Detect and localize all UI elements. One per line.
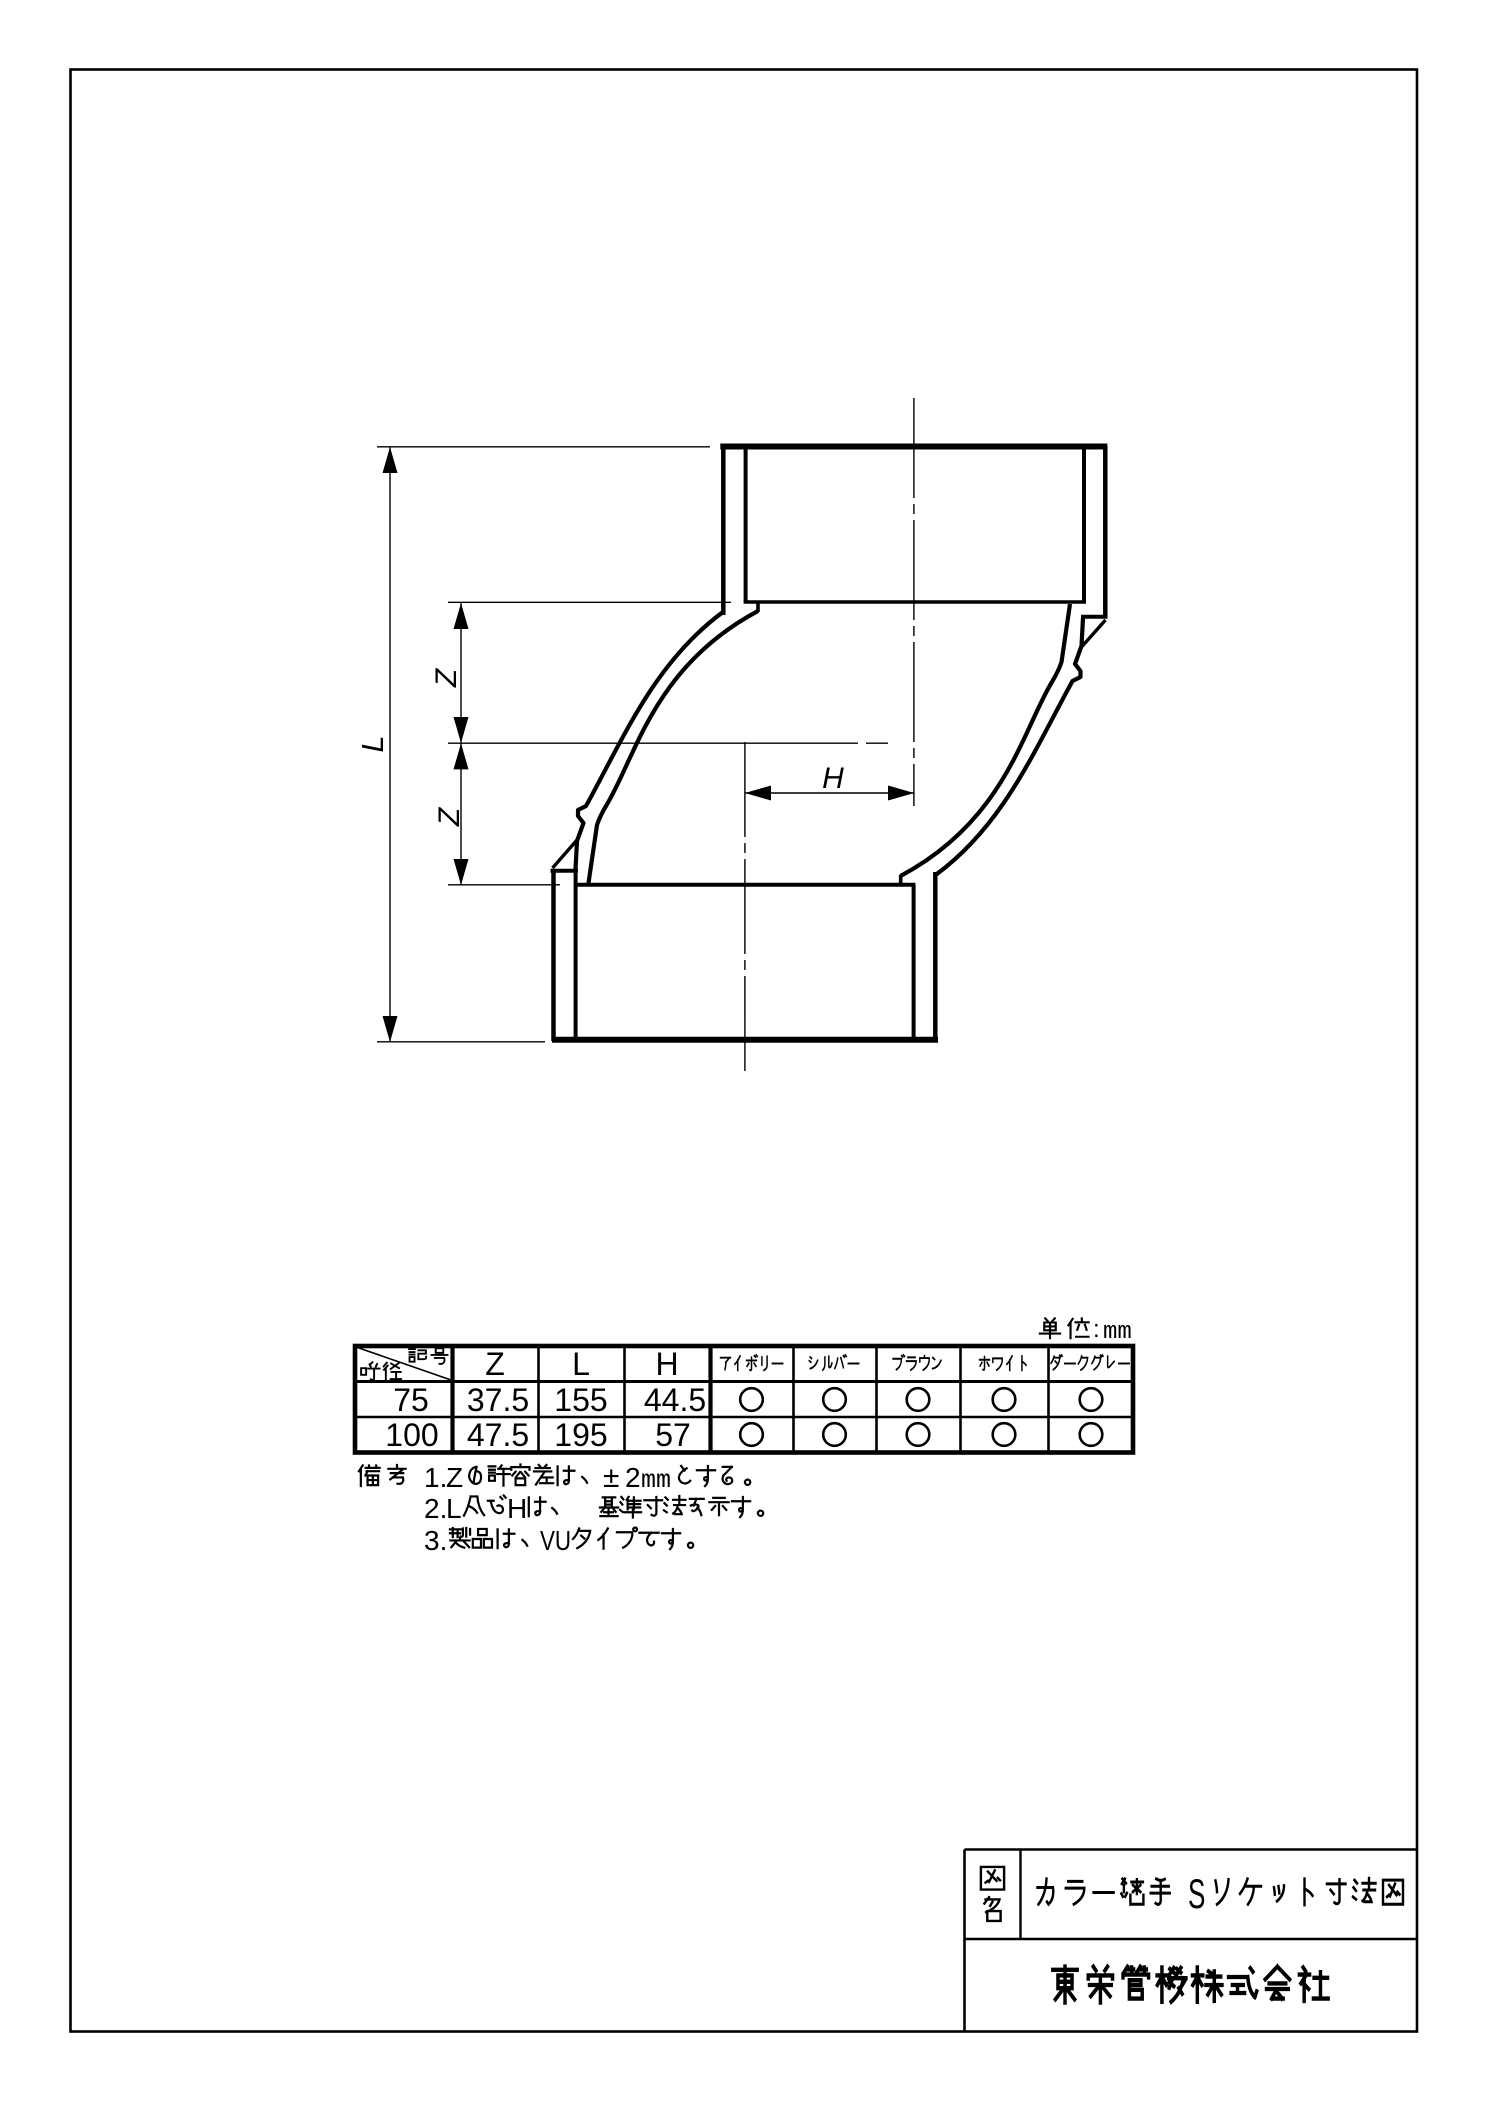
- svg-text:Z: Z: [430, 667, 463, 688]
- svg-text:H: H: [655, 1346, 678, 1382]
- svg-text:L: L: [572, 1346, 590, 1382]
- svg-text:155: 155: [554, 1382, 607, 1418]
- svg-text:±: ±: [603, 1461, 619, 1494]
- svg-text:Z: Z: [446, 1462, 463, 1493]
- svg-text:H: H: [822, 762, 844, 795]
- svg-text:75: 75: [393, 1382, 429, 1418]
- svg-text:37.5: 37.5: [467, 1382, 529, 1418]
- svg-text::: :: [1093, 1316, 1100, 1343]
- svg-text:100: 100: [385, 1417, 438, 1453]
- svg-text:S: S: [1188, 1871, 1205, 1918]
- svg-text:Z: Z: [433, 806, 466, 827]
- svg-text:2.: 2.: [424, 1493, 447, 1524]
- svg-text:3.: 3.: [424, 1525, 447, 1556]
- svg-text:mm: mm: [1103, 1319, 1132, 1346]
- svg-text:L: L: [446, 1493, 462, 1524]
- svg-text:2: 2: [625, 1462, 641, 1493]
- svg-text:H: H: [507, 1493, 527, 1524]
- svg-text:195: 195: [554, 1417, 607, 1453]
- svg-text:L: L: [355, 735, 390, 752]
- svg-text:47.5: 47.5: [467, 1417, 529, 1453]
- svg-text:44.5: 44.5: [644, 1382, 706, 1418]
- svg-text:VU: VU: [540, 1526, 571, 1557]
- svg-text:57: 57: [655, 1417, 691, 1453]
- svg-text:Z: Z: [485, 1346, 505, 1382]
- svg-text:mm: mm: [641, 1466, 671, 1495]
- svg-text:1.: 1.: [424, 1462, 447, 1493]
